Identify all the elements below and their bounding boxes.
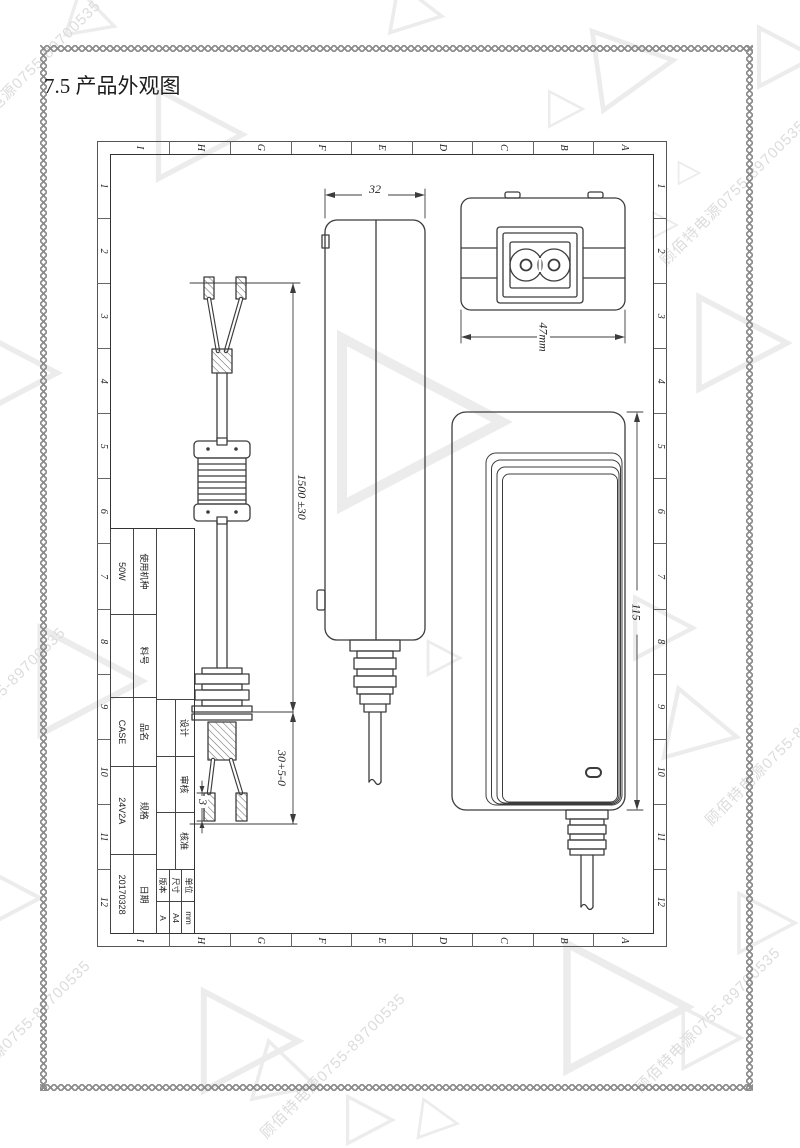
drawing-sheet-landscape: 123456789101112 123456789101112 ABCDEFGH…	[97, 141, 667, 947]
svg-text:115: 115	[630, 603, 644, 620]
title-block-blank-cell	[156, 529, 194, 700]
field-label-name: 品名	[133, 698, 156, 768]
field-label-spec: 规格	[133, 767, 156, 855]
meta-label: 版本	[156, 870, 169, 902]
field-value-model: 50W	[110, 529, 133, 615]
approval-label: 核准	[175, 813, 194, 870]
approval-signature-cell	[156, 813, 175, 870]
field-value-partno	[110, 615, 133, 698]
triangle-watermark	[342, 1092, 398, 1148]
approval-design: 设计	[156, 700, 194, 757]
meta-label: 单位	[181, 870, 194, 902]
side-view-adapter	[317, 220, 425, 785]
drawing-sheet: 123456789101112 123456789101112 ABCDEFGH…	[97, 141, 667, 947]
meta-value: mm	[181, 902, 194, 934]
top-view-adapter	[452, 412, 625, 910]
page-title: 7.5 产品外观图	[44, 70, 181, 100]
triangle-watermark	[545, 88, 587, 130]
approval-signature-cell	[156, 757, 175, 814]
meta-table: 单位 mm 尺寸 A4 版本 A	[156, 870, 194, 934]
led-window	[586, 768, 601, 777]
zigzag-border-right	[746, 45, 753, 1091]
meta-value: A	[156, 902, 169, 934]
triangle-watermark	[676, 160, 702, 186]
field-value-date: 20170328	[110, 855, 133, 934]
approval-label: 设计	[175, 700, 194, 757]
zigzag-border-top	[40, 45, 753, 52]
ferrite-filter	[194, 438, 250, 524]
triangle-watermark	[383, 0, 453, 47]
strain-relief	[192, 668, 252, 720]
svg-text:3: 3	[196, 798, 210, 805]
approval-review: 审核	[156, 757, 194, 814]
triangle-watermark	[688, 288, 798, 398]
dimension-width-47mm: 47mm	[461, 310, 625, 353]
field-value-name: CASE	[110, 698, 133, 768]
document-page: { "page": { "section_title": "7.5 产品外观图"…	[0, 0, 800, 1132]
triangle-watermark	[0, 318, 68, 428]
title-block: 设计 审核 核准 单位 mm 尺寸 A4	[110, 528, 195, 934]
approval-signature-cell	[156, 700, 175, 757]
triangle-watermark	[752, 22, 800, 92]
zigzag-border-bottom	[40, 1084, 753, 1091]
svg-text:32: 32	[368, 182, 381, 196]
meta-value: A4	[169, 902, 182, 934]
field-label-date: 日期	[133, 855, 156, 934]
triangle-watermark	[413, 1095, 465, 1147]
watermark-text: 顾佰特电源0755-89700535	[655, 115, 800, 270]
field-label-partno: 料号	[133, 615, 156, 698]
meta-label: 尺寸	[169, 870, 182, 902]
approval-approve: 核准	[156, 813, 194, 870]
field-value-spec: 24V2A	[110, 767, 133, 855]
svg-text:1500 ±30: 1500 ±30	[295, 474, 309, 520]
cable-assembly	[192, 277, 252, 821]
svg-text:47mm: 47mm	[537, 322, 551, 352]
field-label-model: 使用机种	[133, 529, 156, 615]
end-view-c8-inlet	[461, 192, 625, 310]
dimension-length-115: 115	[627, 412, 644, 810]
svg-text:30+5-0: 30+5-0	[275, 749, 289, 786]
triangle-watermark	[654, 680, 754, 780]
approval-label: 审核	[175, 757, 194, 814]
zigzag-border-left	[40, 45, 47, 1091]
triangle-watermark	[582, 12, 689, 119]
dimension-thickness-32: 32	[325, 182, 425, 218]
